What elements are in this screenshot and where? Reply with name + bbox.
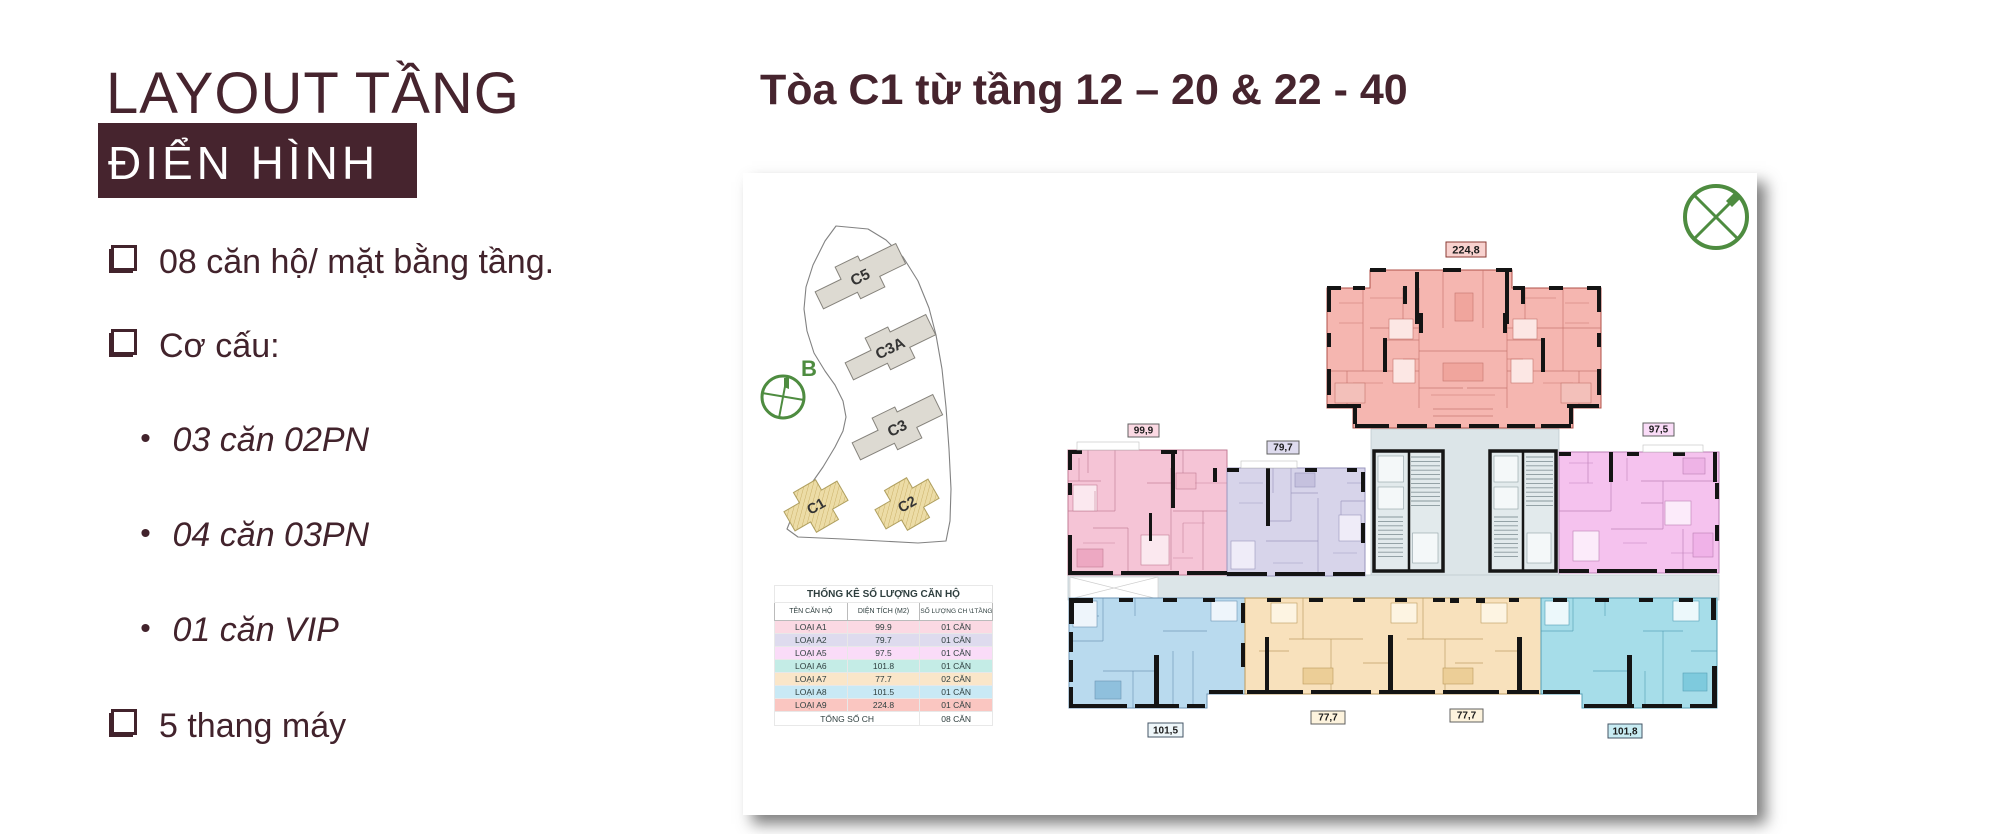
svg-text:224,8: 224,8 (1452, 245, 1480, 257)
svg-text:B: B (801, 356, 817, 381)
svg-text:77,7: 77,7 (1457, 711, 1477, 722)
svg-text:77,7: 77,7 (1318, 713, 1338, 724)
svg-text:101,8: 101,8 (1612, 727, 1637, 738)
svg-text:79,7: 79,7 (1273, 443, 1293, 454)
svg-text:99,9: 99,9 (1134, 426, 1154, 437)
svg-text:101,5: 101,5 (1153, 726, 1178, 737)
svg-text:97,5: 97,5 (1649, 425, 1669, 436)
